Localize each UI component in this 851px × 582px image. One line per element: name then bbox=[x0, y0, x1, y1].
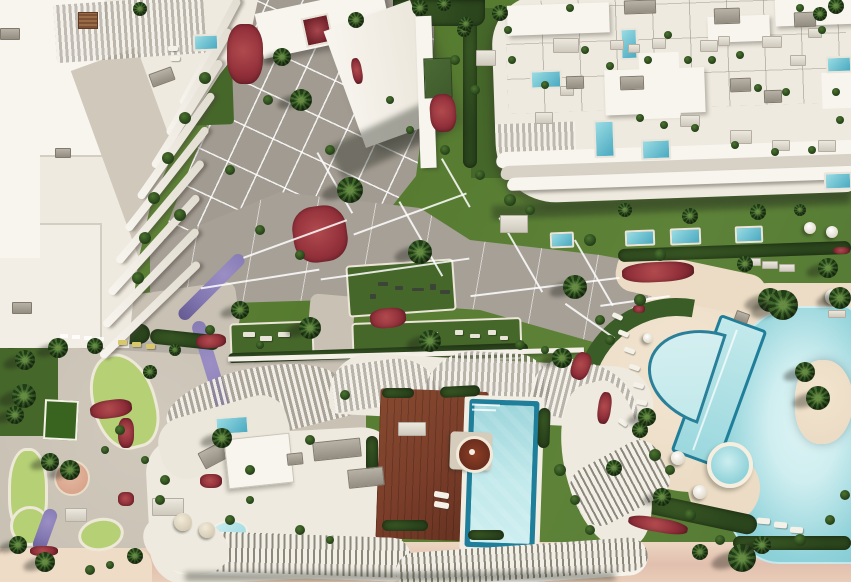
tree bbox=[813, 7, 827, 21]
palm-tree bbox=[653, 488, 671, 506]
shrub bbox=[664, 31, 672, 39]
parasol bbox=[804, 222, 816, 234]
red-flower-bed bbox=[429, 93, 458, 133]
rooftop-box bbox=[347, 466, 385, 489]
shrub bbox=[132, 272, 144, 284]
gym-equipment bbox=[430, 284, 436, 290]
shrub bbox=[263, 95, 273, 105]
aerial-resort-rendering: Aerial 3D architectural rendering of a b… bbox=[0, 0, 851, 582]
shrub bbox=[832, 88, 840, 96]
shrub bbox=[141, 456, 149, 464]
plunge-pool bbox=[735, 226, 764, 244]
palm-tree bbox=[337, 177, 363, 203]
left-building-wing bbox=[0, 148, 40, 258]
shrub bbox=[584, 234, 596, 246]
rooftop-utility-box bbox=[12, 302, 32, 314]
rooftop-pergola bbox=[78, 12, 98, 29]
tree bbox=[606, 460, 622, 476]
shrub bbox=[295, 250, 305, 260]
shrub bbox=[665, 465, 675, 475]
shrub bbox=[255, 225, 265, 235]
shrub bbox=[155, 495, 165, 505]
shrub bbox=[101, 446, 109, 454]
right-apartment-building bbox=[490, 0, 851, 204]
red-flower-bed bbox=[633, 305, 645, 313]
palm-tree bbox=[35, 552, 55, 572]
rooftop-utility-box bbox=[764, 90, 782, 104]
parasol bbox=[643, 333, 653, 343]
sunbed bbox=[243, 332, 255, 337]
palm-tree bbox=[768, 290, 798, 320]
deck-planter bbox=[440, 385, 481, 398]
tree bbox=[794, 204, 806, 216]
tree bbox=[682, 208, 698, 224]
shrub bbox=[148, 192, 160, 204]
tree bbox=[133, 2, 147, 16]
shrub bbox=[585, 525, 595, 535]
palm-tree bbox=[9, 536, 27, 554]
parasol bbox=[693, 485, 707, 499]
tree bbox=[750, 204, 766, 220]
outdoor-furniture bbox=[790, 55, 806, 66]
fitness-equipment bbox=[455, 330, 463, 335]
plunge-pool bbox=[670, 227, 702, 245]
fitness-equipment bbox=[470, 334, 480, 338]
outdoor-furniture bbox=[652, 38, 666, 49]
shrub bbox=[654, 249, 666, 261]
circular-spa bbox=[456, 436, 493, 473]
plunge-pool bbox=[641, 138, 672, 160]
shrub bbox=[256, 341, 264, 349]
shrub bbox=[660, 121, 668, 129]
outdoor-furniture bbox=[828, 310, 846, 318]
shrub bbox=[691, 124, 699, 132]
shrub bbox=[139, 232, 151, 244]
palm-tree bbox=[408, 240, 432, 264]
shrub bbox=[570, 495, 580, 505]
outdoor-furniture bbox=[500, 215, 528, 233]
shrub bbox=[836, 116, 844, 124]
gym-equipment bbox=[395, 286, 403, 290]
deck-planter bbox=[468, 530, 504, 540]
tree bbox=[127, 548, 143, 564]
tree bbox=[492, 5, 508, 21]
shrub bbox=[794, 534, 806, 546]
shrub bbox=[326, 536, 334, 544]
red-flower-bed bbox=[200, 474, 222, 488]
shrub bbox=[246, 496, 254, 504]
shrub bbox=[179, 112, 191, 124]
rooftop-utility-box bbox=[620, 76, 644, 91]
shrub bbox=[684, 56, 692, 64]
shrub bbox=[771, 148, 779, 156]
shrub bbox=[825, 515, 835, 525]
round-daybed bbox=[199, 522, 215, 538]
palm-tree bbox=[6, 406, 24, 424]
shrub bbox=[736, 51, 744, 59]
shrub bbox=[225, 515, 235, 525]
palm-tree bbox=[212, 428, 232, 448]
shrub bbox=[581, 46, 589, 54]
shrub bbox=[470, 85, 480, 95]
palm-tree bbox=[15, 350, 35, 370]
shrub bbox=[754, 84, 762, 92]
tree bbox=[143, 365, 157, 379]
rooftop-utility-box bbox=[55, 148, 71, 158]
shrub bbox=[818, 26, 826, 34]
plunge-pool bbox=[625, 229, 656, 246]
outdoor-furniture bbox=[700, 40, 718, 52]
roof-slab bbox=[507, 2, 610, 36]
framed-lawn-court bbox=[43, 399, 79, 441]
outdoor-furniture bbox=[535, 112, 553, 124]
crosswalk-dash bbox=[60, 334, 68, 338]
shrub bbox=[634, 294, 646, 306]
sun-lounger bbox=[757, 517, 770, 524]
shrub bbox=[440, 145, 450, 155]
yellow-sunbed bbox=[118, 340, 127, 345]
rooftop-box-white bbox=[224, 433, 295, 490]
palm-tree bbox=[552, 348, 572, 368]
shrub bbox=[684, 509, 696, 521]
tree bbox=[459, 17, 473, 31]
tree bbox=[348, 12, 364, 28]
palm-tree bbox=[829, 287, 851, 309]
deck-planter bbox=[382, 520, 428, 531]
building-beach-shadow bbox=[185, 572, 615, 581]
crosswalk-dash bbox=[72, 335, 80, 339]
sun-lounger bbox=[168, 46, 178, 51]
shrub bbox=[295, 525, 305, 535]
shrub bbox=[325, 145, 335, 155]
left-building-top-fins bbox=[53, 0, 207, 63]
shrub bbox=[386, 96, 394, 104]
fitness-equipment bbox=[500, 336, 508, 340]
shrub bbox=[475, 170, 485, 180]
shrub bbox=[450, 55, 460, 65]
outdoor-furniture bbox=[610, 40, 624, 50]
gym-equipment bbox=[378, 282, 388, 286]
outdoor-furniture bbox=[818, 140, 836, 152]
shrub bbox=[708, 56, 716, 64]
outdoor-furniture bbox=[762, 261, 778, 269]
tree bbox=[87, 338, 103, 354]
outdoor-furniture bbox=[628, 44, 640, 53]
yellow-sunbed bbox=[146, 344, 155, 349]
palm-tree bbox=[299, 317, 321, 339]
plunge-pool bbox=[824, 172, 851, 191]
red-flower-bed bbox=[833, 247, 850, 254]
shrub bbox=[504, 26, 512, 34]
shrub bbox=[504, 194, 516, 206]
yellow-sunbed bbox=[132, 342, 141, 347]
shrub bbox=[515, 340, 525, 350]
rooftop-utility-box bbox=[714, 8, 741, 25]
sun-lounger bbox=[790, 527, 803, 534]
deck-planter bbox=[537, 408, 550, 448]
tree bbox=[169, 344, 181, 356]
shrub bbox=[808, 146, 816, 154]
rooftop-utility-box bbox=[730, 78, 751, 93]
shrub bbox=[106, 561, 114, 569]
shrub bbox=[162, 152, 174, 164]
red-flower-bed bbox=[118, 492, 134, 506]
shrub bbox=[225, 165, 235, 175]
shrub bbox=[174, 209, 186, 221]
shrub bbox=[644, 56, 652, 64]
shrub bbox=[796, 4, 804, 12]
shrub bbox=[541, 346, 549, 354]
palm-tree bbox=[753, 536, 771, 554]
shrub bbox=[566, 4, 574, 12]
fitness-equipment bbox=[488, 330, 496, 335]
shrub bbox=[605, 335, 615, 345]
shrub bbox=[541, 81, 549, 89]
tree bbox=[692, 544, 708, 560]
outdoor-furniture bbox=[398, 422, 426, 436]
rooftop-utility-box bbox=[566, 76, 584, 90]
shrub bbox=[85, 565, 95, 575]
outdoor-furniture bbox=[553, 38, 579, 53]
rooftop-utility-box bbox=[624, 0, 656, 15]
shrub bbox=[305, 435, 315, 445]
shrub bbox=[715, 535, 725, 545]
outdoor-furniture bbox=[65, 508, 87, 522]
shrub bbox=[525, 205, 535, 215]
palm-tree bbox=[290, 89, 312, 111]
shrub bbox=[606, 62, 614, 70]
sunbed bbox=[260, 336, 272, 341]
parasol bbox=[671, 451, 685, 465]
rooftop-utility-box bbox=[0, 28, 20, 40]
shrub bbox=[340, 390, 350, 400]
shrub bbox=[649, 449, 661, 461]
green-canopy-shed bbox=[423, 58, 452, 99]
gym-equipment bbox=[412, 288, 424, 291]
plunge-pool bbox=[550, 232, 575, 249]
palm-tree bbox=[818, 258, 838, 278]
spa-center-dot bbox=[469, 449, 475, 455]
rooftop-box bbox=[286, 452, 303, 466]
shrub bbox=[245, 465, 255, 475]
shrub bbox=[595, 315, 605, 325]
shrub bbox=[840, 490, 850, 500]
outdoor-furniture bbox=[718, 36, 730, 46]
palm-tree bbox=[806, 386, 830, 410]
palm-tree bbox=[419, 330, 441, 352]
tree bbox=[618, 203, 632, 217]
palm-tree bbox=[273, 48, 291, 66]
shrub bbox=[636, 114, 644, 122]
penthouse-pool-water bbox=[470, 404, 535, 544]
plunge-pool bbox=[593, 120, 615, 159]
palm-tree bbox=[563, 275, 587, 299]
round-daybed bbox=[174, 513, 192, 531]
shrub bbox=[160, 475, 170, 485]
shrub bbox=[115, 425, 125, 435]
sun-lounger bbox=[774, 521, 787, 528]
palm-tree bbox=[231, 301, 249, 319]
shrub bbox=[508, 56, 516, 64]
palm-tree bbox=[638, 408, 656, 426]
plunge-pool bbox=[193, 34, 220, 52]
sun-lounger bbox=[170, 56, 180, 61]
shrub bbox=[731, 141, 739, 149]
shrub bbox=[406, 126, 414, 134]
deck-planter bbox=[382, 388, 414, 398]
tree bbox=[412, 0, 428, 16]
palm-tree bbox=[60, 460, 80, 480]
shrub bbox=[205, 325, 215, 335]
parasol bbox=[826, 226, 838, 238]
plunge-pool bbox=[826, 56, 851, 74]
outdoor-furniture bbox=[476, 50, 496, 66]
shrub bbox=[782, 88, 790, 96]
gym-equipment bbox=[370, 294, 376, 299]
palm-tree bbox=[48, 338, 68, 358]
outdoor-furniture bbox=[779, 264, 795, 272]
palm-tree bbox=[12, 384, 36, 408]
gym-equipment bbox=[440, 290, 450, 294]
palm-tree bbox=[795, 362, 815, 382]
tree bbox=[737, 256, 753, 272]
outdoor-furniture bbox=[762, 36, 782, 48]
shrub bbox=[554, 464, 566, 476]
shrub bbox=[199, 72, 211, 84]
red-flower-bed bbox=[227, 24, 263, 84]
